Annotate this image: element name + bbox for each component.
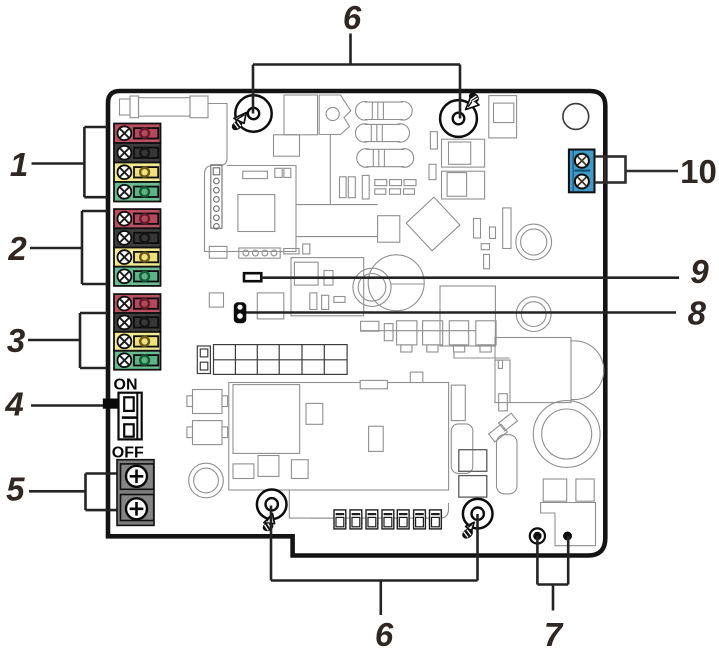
svg-text:4: 4	[4, 386, 23, 423]
svg-text:8: 8	[688, 295, 707, 332]
svg-text:6: 6	[375, 616, 394, 650]
svg-text:9: 9	[690, 253, 709, 290]
svg-text:ON: ON	[114, 377, 138, 394]
svg-text:6: 6	[343, 0, 362, 36]
svg-text:3: 3	[7, 322, 25, 359]
svg-text:5: 5	[6, 471, 25, 508]
svg-text:10: 10	[680, 153, 717, 190]
svg-text:7: 7	[544, 616, 564, 650]
svg-text:2: 2	[7, 230, 27, 267]
svg-text:1: 1	[10, 146, 28, 183]
